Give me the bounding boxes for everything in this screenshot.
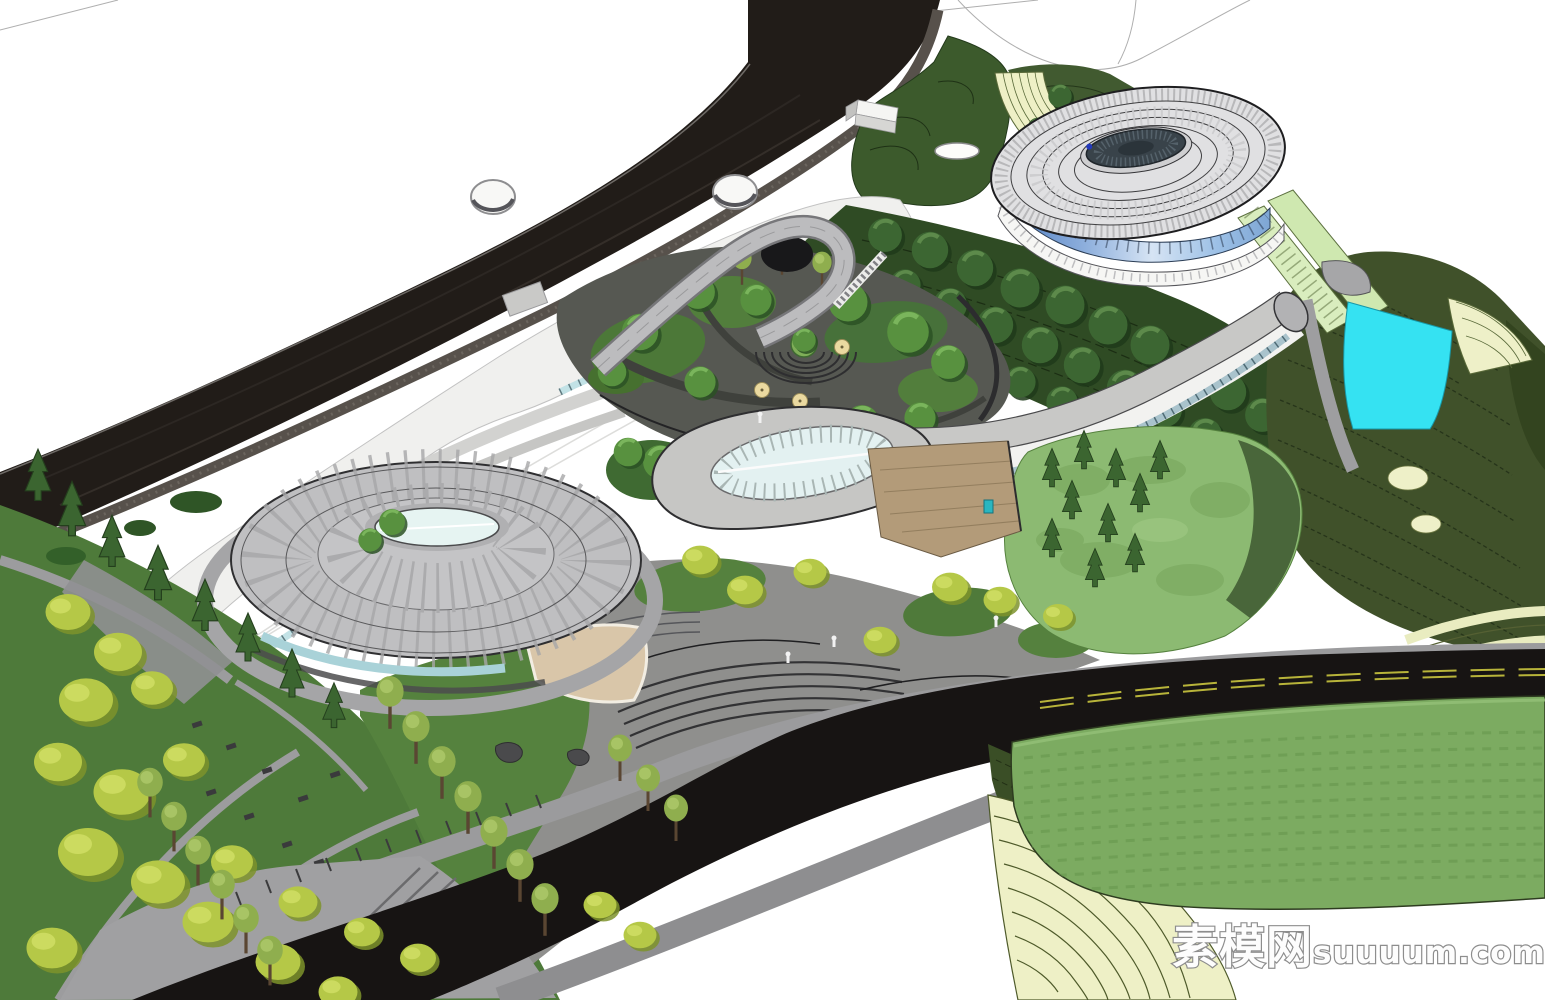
- teal-kiosk: [984, 500, 993, 513]
- roof-skylight-void: [713, 175, 757, 209]
- cream-terrace-patch: [1411, 515, 1441, 533]
- shrub: [46, 547, 86, 565]
- site-render-stage: 素模网suuuum.com: [0, 0, 1545, 1000]
- site-render-canvas: 素模网suuuum.com: [0, 0, 1545, 1000]
- watermark-latin: suuuum.com: [1313, 935, 1545, 971]
- cream-terrace-patch: [1388, 466, 1428, 490]
- roof-skylight-void: [471, 180, 515, 214]
- watermark-cjk: 素模网: [1172, 920, 1313, 974]
- mound-highlight: [1132, 518, 1188, 542]
- crop-field: [1011, 696, 1545, 909]
- shrub: [124, 520, 156, 536]
- shrub: [170, 491, 222, 513]
- oval-pond: [935, 143, 979, 159]
